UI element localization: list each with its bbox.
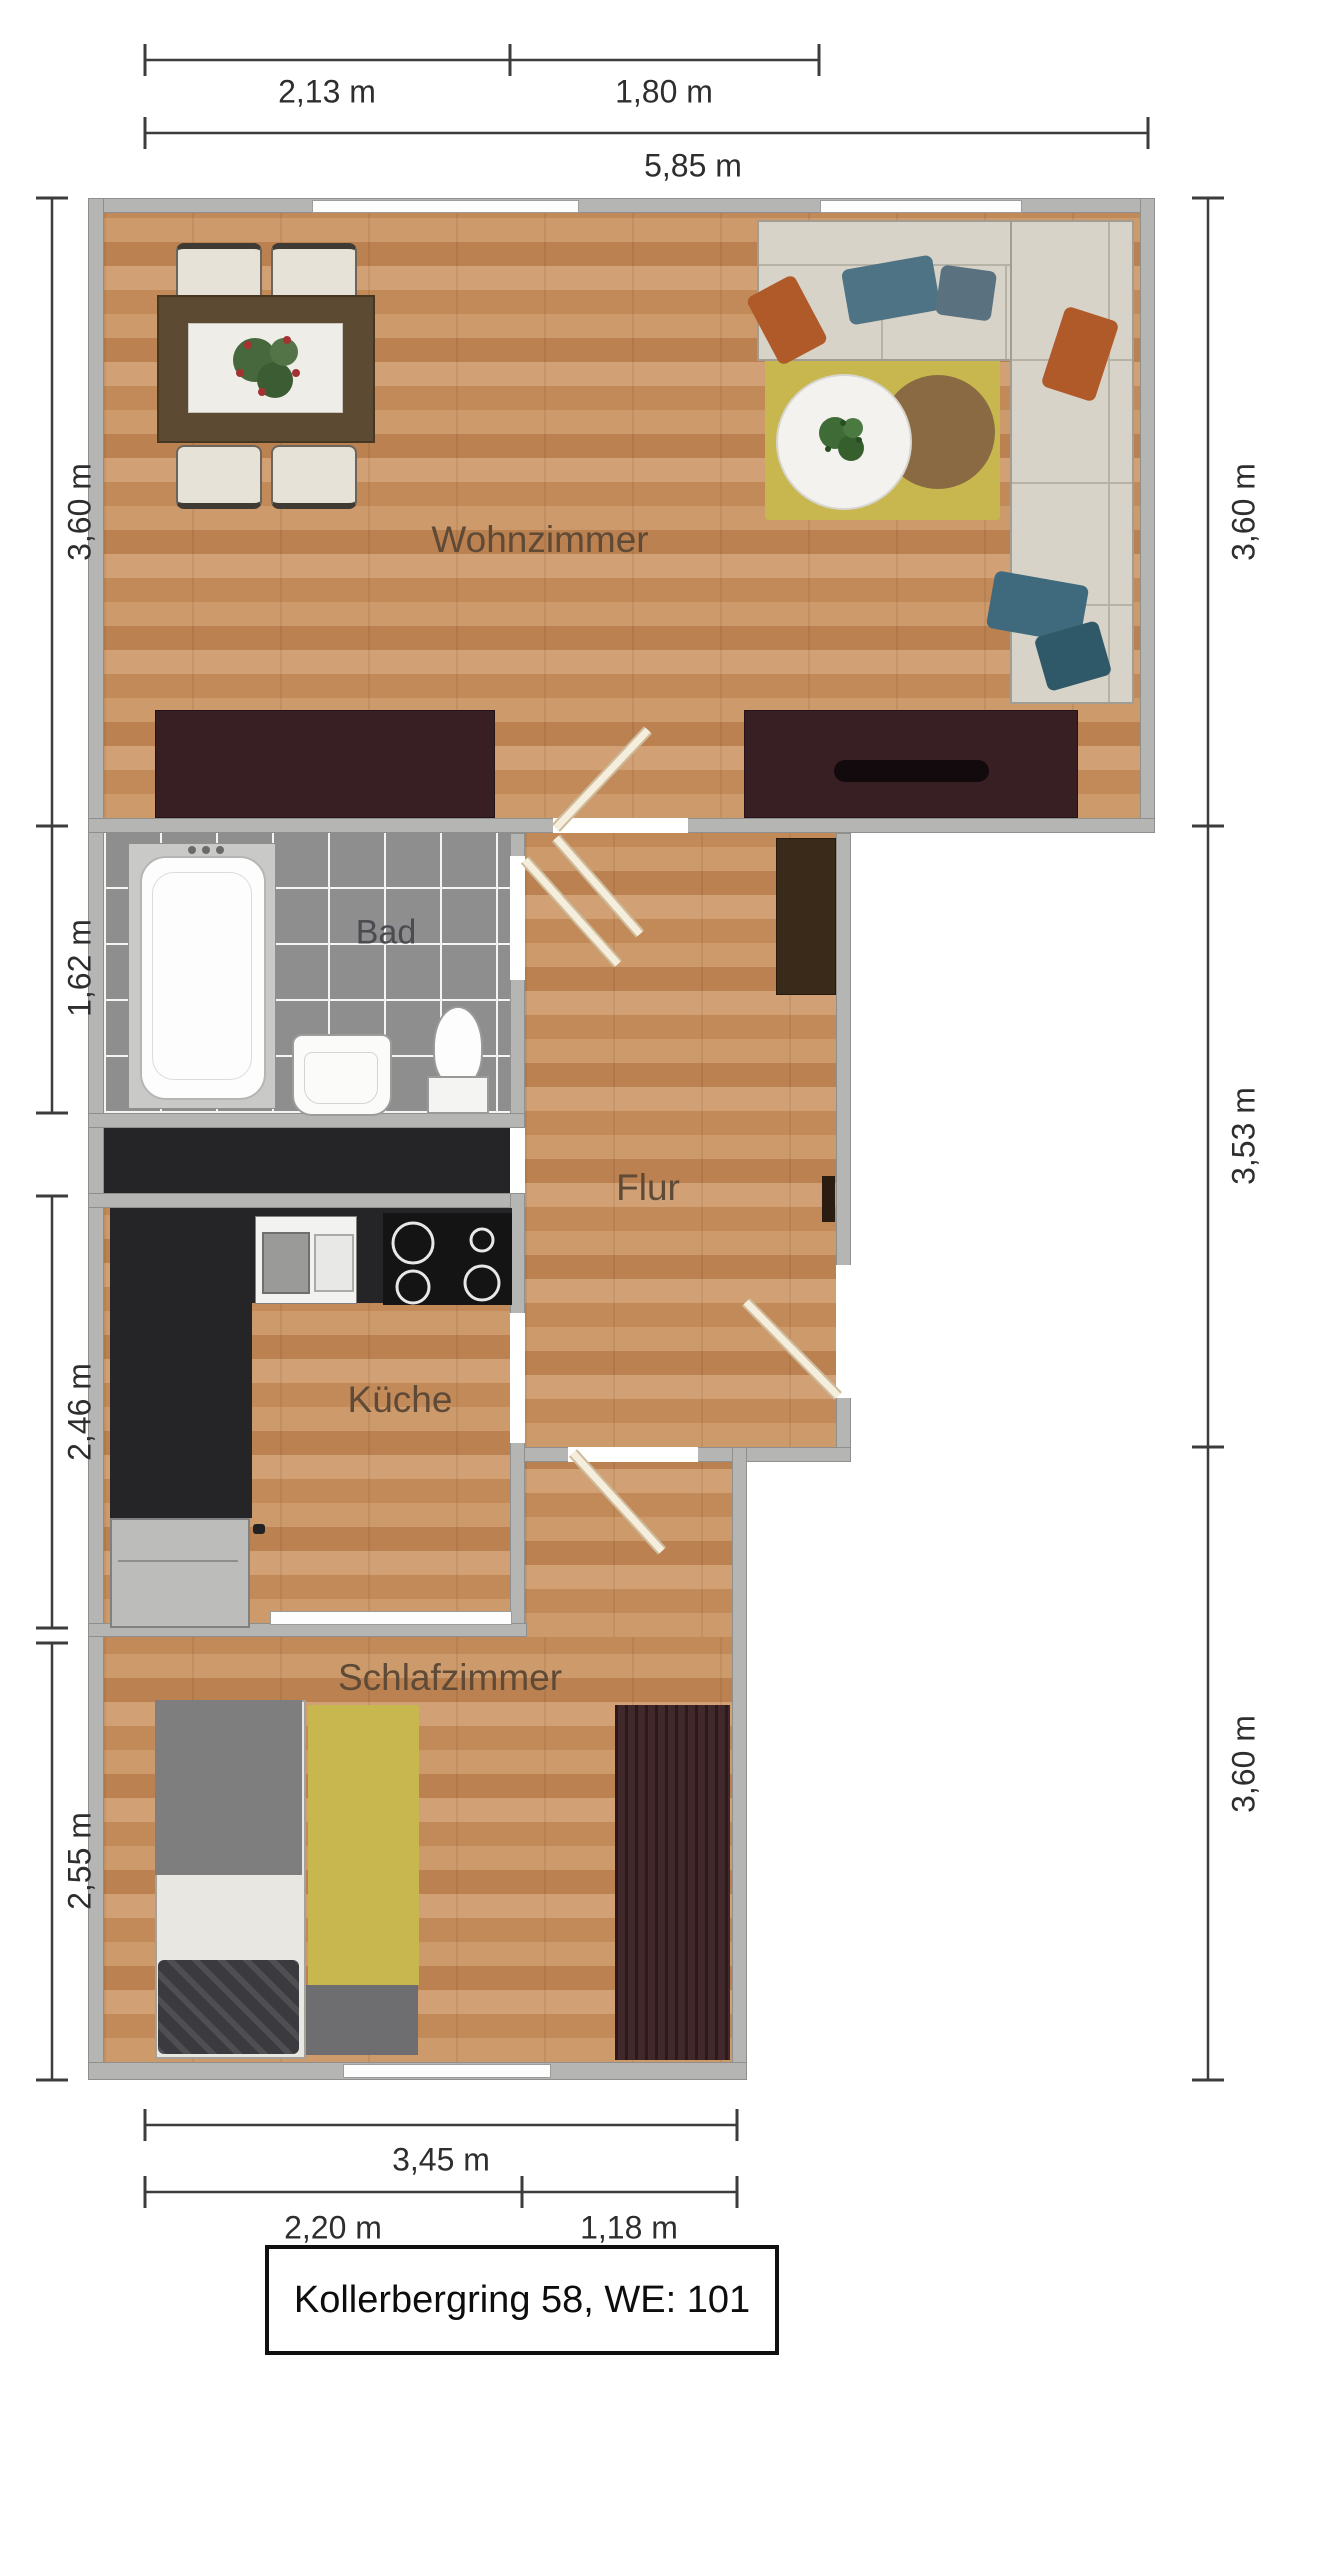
flur-wardrobe: [776, 838, 836, 995]
washing-machine: [110, 1518, 250, 1628]
bedroom-ottoman: [306, 1985, 418, 2055]
kitchen-counter-left: [110, 1303, 252, 1518]
sofa-back-line: [1108, 222, 1110, 702]
wall-wohnzimmer-right: [1140, 198, 1155, 833]
sofa-cushion-line: [1012, 482, 1132, 484]
toilet-tank: [427, 1076, 489, 1114]
kitchen-sink-drainer: [314, 1234, 354, 1292]
wall-schlafzimmer-right: [732, 1447, 747, 2080]
tv-lowboard-slot: [834, 760, 989, 782]
bed-blanket-dark: [158, 1960, 299, 2054]
stove: [383, 1213, 512, 1305]
door-opening-schlafzimmer: [568, 1447, 698, 1462]
bed-duvet-grey: [155, 1700, 302, 1875]
dim-left-wohnzimmer: 3,60 m: [62, 463, 99, 561]
washing-machine-line: [118, 1560, 238, 1562]
pillow-slate: [935, 264, 997, 321]
kueche-door-stop: [253, 1524, 265, 1534]
dim-left-schlafzimmer: 2,55 m: [62, 1812, 99, 1910]
dim-right-wohnzimmer: 3,60 m: [1226, 463, 1263, 561]
wall-storage-bottom: [88, 1193, 525, 1208]
storage-strip: [104, 1128, 510, 1193]
kitchen-sink-basin: [262, 1232, 310, 1294]
dim-top-segment-2: 1,80 m: [615, 74, 713, 111]
bathtub-inner-line: [152, 872, 252, 1080]
window-schlafzimmer: [343, 2064, 551, 2078]
bedroom-wardrobe: [615, 1705, 730, 2060]
bedroom-rug-yellow: [308, 1705, 419, 1985]
sideboard: [155, 710, 495, 818]
door-opening-bad: [510, 856, 525, 980]
dim-bottom-segment-1: 2,20 m: [284, 2210, 382, 2247]
sofa-cushion-line: [1005, 264, 1007, 359]
room-label-schlafzimmer: Schlafzimmer: [338, 1657, 562, 1699]
dining-chair: [176, 445, 262, 509]
door-opening-kueche: [510, 1313, 525, 1443]
window-wohnzimmer-left: [312, 200, 579, 213]
address-title-box: Kollerbergring 58, WE: 101: [265, 2245, 779, 2355]
dim-left-bad: 1,62 m: [62, 919, 99, 1017]
dim-top-segment-1: 2,13 m: [278, 74, 376, 111]
dim-bottom-total: 3,45 m: [392, 2142, 490, 2179]
window-wohnzimmer-right: [820, 200, 1022, 213]
room-label-bad: Bad: [356, 914, 417, 953]
dim-right-schlafzimmer: 3,60 m: [1226, 1715, 1263, 1813]
room-label-flur: Flur: [616, 1167, 680, 1209]
dining-chair: [271, 445, 357, 509]
coffee-table-round: [776, 374, 912, 510]
window-kueche-sill: [270, 1611, 512, 1625]
dim-bottom-segment-2: 1,18 m: [580, 2210, 678, 2247]
room-label-kueche: Küche: [348, 1379, 453, 1421]
toilet-bowl: [433, 1006, 483, 1086]
table-runner: [188, 323, 343, 413]
dim-right-flur: 3,53 m: [1226, 1087, 1263, 1185]
sink-inner-line: [304, 1052, 378, 1104]
floor-plan-canvas: Wohnzimmer Bad Flur Küche Schlafzimmer 2…: [0, 0, 1329, 2560]
address-title: Kollerbergring 58, WE: 101: [294, 2279, 750, 2322]
dim-left-kueche: 2,46 m: [62, 1363, 99, 1461]
dim-top-total: 5,85 m: [644, 148, 742, 185]
door-opening-wohnzimmer: [553, 818, 688, 833]
entrance-door-leaf: [822, 1176, 835, 1222]
schlafzimmer-notch-floor: [525, 1462, 732, 1637]
door-opening-entrance: [836, 1265, 851, 1398]
room-label-wohnzimmer: Wohnzimmer: [431, 519, 648, 561]
